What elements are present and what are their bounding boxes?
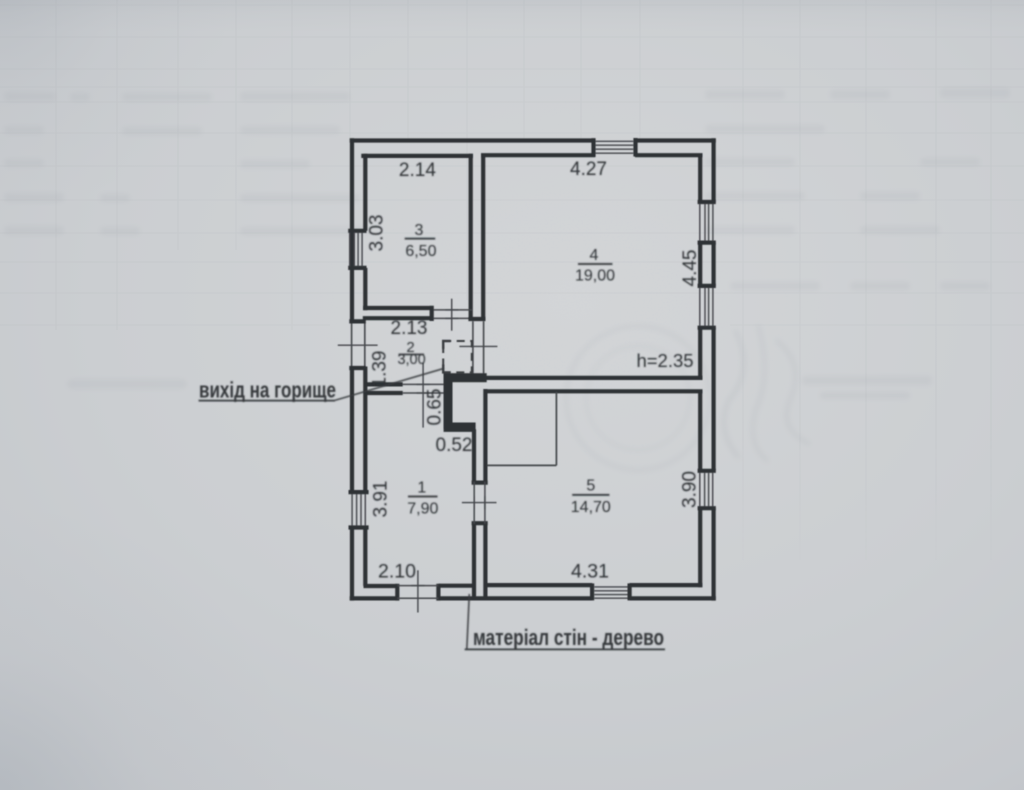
svg-text:19,00: 19,00 — [575, 268, 615, 285]
svg-text:6,50: 6,50 — [405, 243, 436, 260]
svg-text:1: 1 — [417, 480, 426, 497]
svg-text:7,90: 7,90 — [407, 501, 438, 518]
svg-text:4.45: 4.45 — [680, 250, 701, 287]
svg-text:h=2.35: h=2.35 — [636, 350, 693, 371]
svg-text:3: 3 — [415, 222, 424, 239]
svg-text:матеріал стін - дерево: матеріал стін - дерево — [473, 625, 664, 650]
svg-text:2.14: 2.14 — [399, 160, 436, 181]
svg-text:14,70: 14,70 — [571, 499, 611, 516]
svg-text:4.27: 4.27 — [570, 159, 607, 180]
svg-text:4.31: 4.31 — [571, 561, 609, 583]
svg-text:5: 5 — [586, 478, 595, 495]
svg-text:3.91: 3.91 — [371, 481, 392, 518]
svg-text:1.39: 1.39 — [370, 351, 391, 388]
svg-text:0.52: 0.52 — [436, 435, 473, 456]
svg-text:3.90: 3.90 — [680, 471, 701, 508]
svg-text:4: 4 — [590, 247, 599, 264]
svg-text:3.03: 3.03 — [367, 215, 388, 252]
svg-text:0.65: 0.65 — [425, 389, 446, 426]
svg-text:2.10: 2.10 — [378, 561, 416, 583]
svg-text:вихід на горище: вихід на горище — [199, 377, 336, 402]
svg-text:2.13: 2.13 — [391, 318, 428, 339]
